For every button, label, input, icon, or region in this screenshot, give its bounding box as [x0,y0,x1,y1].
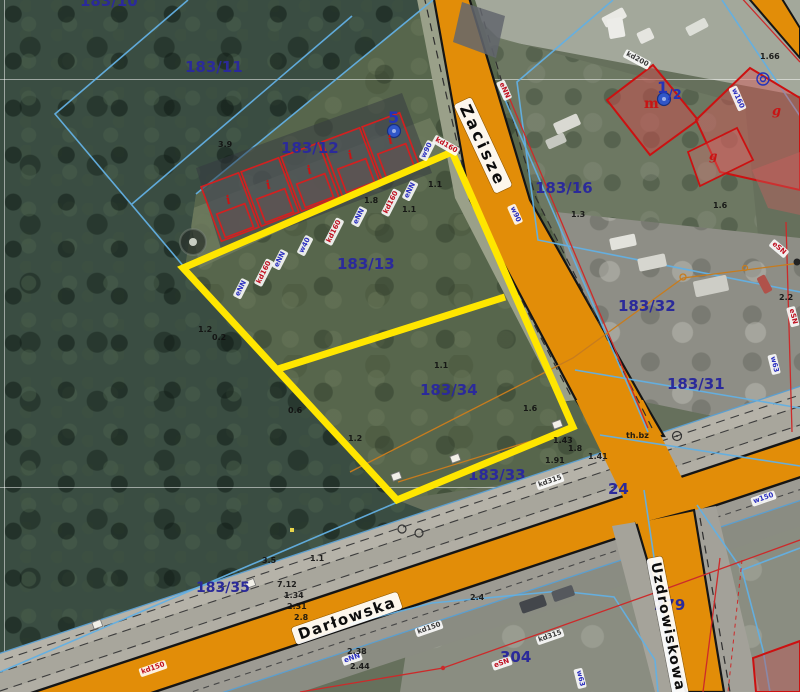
measurement: 3.5 [262,556,276,565]
parcel-label-183-31: 183/31 [667,375,725,393]
utility-label: eSN [491,656,513,671]
building-letter-g: g [772,104,781,119]
measurement: 0.2 [212,333,226,342]
measurement: 1.91 [545,456,565,465]
measurement: 1.8 [568,444,582,453]
address-number-1: 1 [657,78,668,97]
utility-label: eNN [402,179,419,201]
parcel-label-183-13: 183/13 [337,255,395,273]
parcel-label-183-11: 183/11 [185,58,243,76]
label-layer: 183/10 183/11 183/12 183/13 183/16 183/3… [0,0,800,692]
utility-label: kd160 [254,258,275,287]
utility-label: eSN [768,239,789,259]
building-letter-i: i [264,178,273,193]
measurement: 3.9 [218,140,232,149]
utility-label: kd160 [324,217,345,246]
measurement: 1.41 [588,452,608,461]
measurement: 1.1 [434,361,448,370]
utility-label: kd150 [138,660,168,678]
measurement: 7.12 [277,580,297,589]
parcel-label-183-34: 183/34 [420,381,478,399]
utility-label: eNN [496,79,513,101]
parcel-label-183-12: 183/12 [281,139,339,157]
utility-label: w160 [728,85,746,112]
parcel-label-183-35: 183/35 [196,580,250,596]
measurement: 0.6 [288,406,302,415]
measurement: 2.4 [470,593,484,602]
measurement: 1.66 [760,52,780,61]
parcel-label-183-10: 183/10 [80,0,138,10]
measurement: 2.31 [287,602,307,611]
measurement: 1.8 [364,196,378,205]
utility-label: eNN [233,277,250,299]
measurement: 1.6 [713,201,727,210]
utility-label: eSN [786,306,799,327]
utility-label: kd160 [432,135,461,157]
street-label-zacisze: Zacisze [454,97,513,194]
utility-label: w150 [750,490,777,507]
utility-label: kd150 [414,620,444,638]
building-letter-m: m [644,96,659,112]
measurement: 1.6 [523,404,537,413]
measurement: 2.2 [779,293,793,302]
measurement: 1.1 [310,554,324,563]
building-letter-i: i [346,148,355,163]
measurement: 1.3 [571,210,585,219]
utility-label: eNN [351,205,368,227]
utility-label: kd315 [535,473,565,491]
parcel-label-24: 24 [608,480,629,498]
measurement: 2.38 [347,647,367,656]
utility-label: kd200 [623,49,652,70]
utility-label: w63 [767,354,781,376]
misc-label-thbz: th.bz [626,431,649,440]
measurement: 1.1 [402,205,416,214]
map-canvas[interactable]: 183/3 181 183/33 [0,0,800,692]
utility-label: w40 [297,234,314,256]
utility-label: w63 [573,668,587,690]
measurement: 2.8 [294,613,308,622]
parcel-label-183-16: 183/16 [535,179,593,197]
utility-label: kd315 [535,628,565,646]
measurement: 1.2 [198,325,212,334]
measurement: 1.34 [284,591,304,600]
building-letter-i: i [224,193,233,208]
parcel-suffix-2: /2 [668,88,682,103]
measurement: 1.2 [348,434,362,443]
measurement: 1.1 [428,180,442,189]
parcel-label-183-32: 183/32 [618,297,676,315]
building-letter-i: i [386,133,395,148]
building-letter-i: i [305,163,314,178]
utility-label: eNN [272,248,289,270]
utility-label: kd160 [381,188,402,217]
utility-label: w90 [507,203,523,225]
measurement: 2.44 [350,662,370,671]
address-number-5: 5 [388,108,399,127]
building-letter-g: g [709,149,717,163]
street-label-uzdrowiskowa: Uzdrowiskowa [646,556,689,692]
